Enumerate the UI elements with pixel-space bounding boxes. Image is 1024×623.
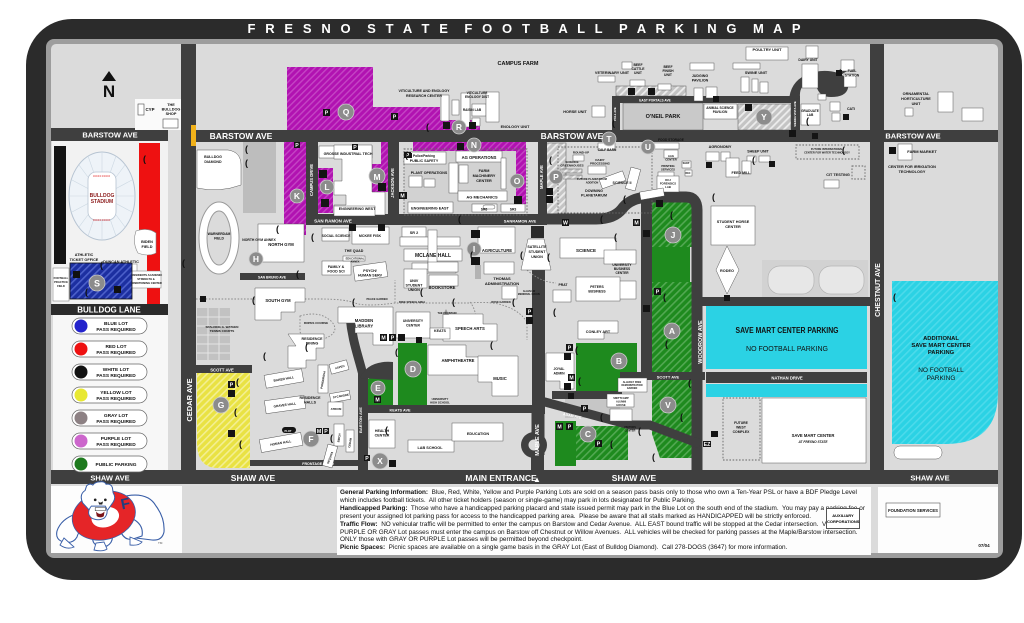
svg-text:DINING: DINING — [306, 342, 319, 346]
svg-text:SCIENCE: SCIENCE — [576, 248, 596, 253]
svg-text:STUDENT HORSE: STUDENT HORSE — [717, 220, 750, 224]
svg-text:BULLDOG: BULLDOG — [162, 108, 181, 112]
svg-text:(: ( — [234, 407, 237, 417]
svg-text:SCOTT AVE: SCOTT AVE — [210, 368, 234, 373]
svg-text:(: ( — [575, 345, 578, 355]
svg-text:O: O — [514, 176, 521, 186]
svg-text:TM: TM — [158, 541, 163, 545]
svg-text:DAIRY UNIT: DAIRY UNIT — [798, 58, 818, 62]
svg-text:(: ( — [614, 232, 617, 242]
svg-text:KEATS AVE: KEATS AVE — [389, 409, 410, 413]
svg-text:FAMILY &: FAMILY & — [328, 265, 345, 269]
svg-text:C: C — [585, 429, 591, 439]
svg-text:BULLDOG LANE: BULLDOG LANE — [77, 306, 141, 315]
svg-text:HOUSE: HOUSE — [616, 403, 625, 407]
svg-text:SHAW AVE: SHAW AVE — [612, 473, 657, 483]
svg-text:LAB SCHOOL: LAB SCHOOL — [417, 446, 443, 450]
svg-text:(: ( — [806, 116, 809, 126]
svg-text:oooooooo: oooooooo — [93, 218, 110, 222]
svg-text:(: ( — [680, 412, 683, 422]
svg-text:SCOTT AVE: SCOTT AVE — [657, 375, 680, 380]
svg-text:PASS REQUIRED: PASS REQUIRED — [96, 373, 136, 379]
svg-text:(: ( — [623, 194, 626, 204]
svg-text:SWINE UNIT: SWINE UNIT — [745, 71, 768, 75]
svg-text:P: P — [568, 425, 572, 431]
svg-text:CIT TESTING: CIT TESTING — [826, 173, 850, 177]
svg-text:MCLANE HALL: MCLANE HALL — [415, 253, 451, 259]
svg-text:BUSINESS: BUSINESS — [588, 290, 606, 294]
svg-text:UNIV: UNIV — [410, 279, 419, 283]
svg-text:(: ( — [426, 122, 429, 132]
svg-text:(: ( — [665, 339, 668, 349]
svg-text:(: ( — [245, 144, 248, 154]
svg-text:(: ( — [470, 250, 473, 260]
svg-text:UNIVERSITY: UNIVERSITY — [403, 319, 424, 323]
svg-text:SHAW AVE: SHAW AVE — [910, 474, 949, 483]
svg-text:P: P — [324, 429, 328, 435]
svg-text:PUBLIC SAFETY: PUBLIC SAFETY — [410, 159, 439, 163]
svg-text:E: E — [375, 383, 381, 393]
svg-text:(: ( — [688, 378, 691, 388]
svg-text:STADIUM: STADIUM — [91, 199, 113, 205]
svg-text:P: P — [230, 383, 234, 389]
svg-text:UNIT: UNIT — [912, 102, 922, 106]
svg-text:FOOD SCI: FOOD SCI — [327, 270, 344, 274]
svg-text:CENTER: CENTER — [725, 225, 741, 229]
svg-text:PARKING: PARKING — [927, 375, 956, 382]
svg-text:WEST: WEST — [736, 426, 747, 430]
svg-text:T: T — [606, 134, 612, 144]
svg-text:(: ( — [245, 158, 248, 168]
svg-text:JOYAL: JOYAL — [554, 367, 565, 371]
svg-text:SAVE MART CENTER PARKING: SAVE MART CENTER PARKING — [736, 326, 839, 335]
svg-text:LIBRARY: LIBRARY — [355, 324, 374, 329]
svg-text:CAMPUS FARM: CAMPUS FARM — [498, 61, 539, 67]
svg-text:UNIT: UNIT — [634, 71, 643, 75]
svg-text:MEMORIAL GROVE: MEMORIAL GROVE — [518, 293, 541, 296]
svg-text:ADMINISTRATION: ADMINISTRATION — [485, 281, 519, 286]
svg-text:I: I — [473, 244, 475, 254]
svg-text:ADDITION: ADDITION — [586, 181, 599, 185]
svg-text:FUEL: FUEL — [848, 69, 857, 73]
svg-text:FUTURE PLANETARIUM: FUTURE PLANETARIUM — [577, 177, 607, 181]
svg-text:M: M — [634, 221, 638, 227]
svg-text:SATELLITE: SATELLITE — [527, 245, 547, 249]
svg-text:BARSTOW AVE: BARSTOW AVE — [541, 131, 604, 141]
svg-text:(: ( — [547, 252, 550, 262]
svg-text:VETERINARY UNIT: VETERINARY UNIT — [595, 71, 630, 75]
svg-text:ROSE GARDEN: ROSE GARDEN — [491, 300, 510, 304]
svg-text:CALF BARN: CALF BARN — [598, 148, 617, 152]
svg-text:(: ( — [330, 433, 333, 443]
svg-text:AG MECHANICS: AG MECHANICS — [466, 195, 498, 200]
svg-text:GROSSE INDUSTRIAL TECH: GROSSE INDUSTRIAL TECH — [324, 152, 373, 156]
svg-text:RESIDENCE: RESIDENCE — [300, 396, 322, 400]
svg-text:PLANETARIUM: PLANETARIUM — [581, 194, 607, 198]
svg-text:TICKET OFFICE: TICKET OFFICE — [70, 258, 99, 262]
svg-text:(: ( — [600, 412, 603, 422]
svg-text:LAB: LAB — [807, 113, 814, 117]
svg-text:(: ( — [752, 155, 755, 165]
svg-text:ENOLOGY DIST: ENOLOGY DIST — [465, 95, 489, 99]
svg-text:CENTER: CENTER — [625, 429, 636, 433]
svg-text:RED LOT: RED LOT — [105, 344, 126, 350]
svg-text:SANRAMON AVE: SANRAMON AVE — [504, 219, 537, 224]
svg-text:PURPLE LOT: PURPLE LOT — [101, 436, 131, 442]
svg-text:(: ( — [712, 192, 715, 202]
svg-text:BIDEN: BIDEN — [141, 240, 153, 244]
svg-text:ENOLOGY UNIT: ENOLOGY UNIT — [501, 125, 531, 129]
svg-text:MAPLE AVE: MAPLE AVE — [535, 424, 541, 456]
svg-text:AMPHITHEATRE: AMPHITHEATRE — [442, 358, 475, 363]
svg-text:MCKEE FISK: MCKEE FISK — [359, 234, 382, 238]
svg-text:PASS REQUIRED: PASS REQUIRED — [96, 442, 136, 448]
svg-text:UNION: UNION — [531, 255, 543, 259]
svg-text:PASS REQUIRED: PASS REQUIRED — [96, 419, 136, 425]
svg-text:PARKING: PARKING — [928, 350, 955, 356]
svg-text:SR 2: SR 2 — [410, 231, 418, 235]
svg-text:STUDENT: STUDENT — [406, 284, 424, 288]
svg-text:(: ( — [182, 258, 185, 268]
svg-text:STATION: STATION — [845, 74, 860, 78]
svg-text:SHOP: SHOP — [166, 112, 177, 116]
svg-text:THE FOUNTAIN: THE FOUNTAIN — [437, 311, 456, 315]
svg-text:(: ( — [239, 439, 242, 449]
svg-text:PULL AVE: PULL AVE — [613, 107, 617, 121]
svg-text:ALUMNI: ALUMNI — [616, 400, 626, 404]
svg-text:(: ( — [670, 210, 673, 220]
svg-text:P: P — [325, 111, 329, 117]
svg-text:FARM MARKET: FARM MARKET — [907, 149, 937, 154]
svg-text:PEACE GARDEN: PEACE GARDEN — [367, 297, 388, 301]
svg-text:ATHLETIC: ATHLETIC — [75, 253, 94, 257]
svg-text:FUTURE INTERNATIONAL: FUTURE INTERNATIONAL — [811, 147, 844, 151]
svg-text:(: ( — [490, 340, 493, 350]
svg-text:(: ( — [638, 426, 641, 436]
svg-text:HORSE UNIT: HORSE UNIT — [563, 110, 587, 114]
svg-text:UNIT: UNIT — [664, 73, 673, 77]
svg-text:PSYCH/: PSYCH/ — [363, 269, 376, 273]
svg-text:DIAMOND: DIAMOND — [204, 160, 222, 164]
svg-text:PASS REQUIRED: PASS REQUIRED — [96, 327, 136, 333]
svg-text:(: ( — [520, 250, 523, 260]
svg-text:WHITE LOT: WHITE LOT — [103, 367, 129, 373]
svg-text:(: ( — [420, 287, 423, 297]
svg-text:PRESIDENTS ACADEMIC: PRESIDENTS ACADEMIC — [130, 273, 162, 277]
svg-text:(: ( — [549, 155, 552, 165]
svg-text:(: ( — [452, 297, 455, 307]
svg-text:G: G — [218, 400, 225, 410]
svg-text:FIELD: FIELD — [142, 245, 153, 249]
svg-text:P: P — [528, 310, 532, 316]
svg-text:H: H — [253, 254, 259, 264]
svg-text:NATHAN DRIVE: NATHAN DRIVE — [771, 376, 803, 381]
svg-text:MAPLE AVE: MAPLE AVE — [539, 165, 544, 189]
svg-text:BARSTOW AVE: BARSTOW AVE — [210, 131, 273, 141]
svg-text:P: P — [553, 172, 559, 182]
svg-text:GREENHOUSES: GREENHOUSES — [560, 164, 583, 168]
svg-text:MUSIC: MUSIC — [493, 376, 507, 381]
svg-text:ANNEX: ANNEX — [350, 260, 359, 264]
svg-text:SOCIAL SCIENCE: SOCIAL SCIENCE — [322, 234, 352, 238]
svg-text:VITICULTURE AND ENOLOGY: VITICULTURE AND ENOLOGY — [398, 89, 450, 93]
svg-text:RAISIN LAB: RAISIN LAB — [463, 108, 482, 112]
svg-text:CONDITIONING CENTER: CONDITIONING CENTER — [130, 281, 162, 285]
svg-text:GARDEN: GARDEN — [627, 387, 638, 390]
svg-text:CENTER: CENTER — [406, 324, 420, 328]
svg-text:AG OPERATIONS: AG OPERATIONS — [462, 155, 497, 160]
svg-text:U: U — [645, 142, 651, 152]
svg-text:VISITORS: VISITORS — [624, 425, 636, 429]
svg-text:HIGH SCHOOL: HIGH SCHOOL — [430, 401, 450, 405]
svg-text:M: M — [400, 194, 404, 200]
svg-text:SIERRA VISTA AVE: SIERRA VISTA AVE — [793, 101, 797, 127]
svg-text:J: J — [671, 230, 676, 240]
svg-text:SMITTCAMP: SMITTCAMP — [613, 396, 629, 400]
svg-text:BARSTOW AVE: BARSTOW AVE — [82, 131, 137, 140]
svg-text:BARTON AVE: BARTON AVE — [358, 407, 363, 433]
svg-text:WOODROW AVE: WOODROW AVE — [698, 320, 704, 364]
svg-text:ADDITIONAL: ADDITIONAL — [923, 336, 959, 342]
svg-text:F: F — [308, 434, 313, 444]
svg-text:ENGINEERING EAST: ENGINEERING EAST — [411, 207, 449, 211]
svg-text:FEED MILL: FEED MILL — [732, 171, 752, 175]
svg-text:(: ( — [352, 297, 355, 307]
svg-text:P: P — [597, 442, 601, 448]
svg-text:07/04: 07/04 — [978, 543, 990, 548]
svg-text:PROCESSING: PROCESSING — [590, 162, 611, 166]
svg-text:X: X — [377, 456, 383, 466]
svg-text:SOUTH GYM: SOUTH GYM — [265, 298, 291, 303]
svg-text:M: M — [317, 429, 321, 435]
svg-text:STUDENT: STUDENT — [529, 250, 547, 254]
svg-text:STRENGTH &: STRENGTH & — [137, 277, 155, 281]
svg-text:N: N — [471, 140, 477, 150]
svg-text:MADDEN: MADDEN — [355, 318, 373, 323]
svg-text:SPEECH ARTS: SPEECH ARTS — [455, 326, 485, 331]
svg-text:(: ( — [610, 439, 613, 449]
svg-text:L: L — [324, 182, 329, 192]
svg-text:P: P — [656, 290, 660, 296]
svg-text:TENNIS COURTS: TENNIS COURTS — [210, 329, 235, 333]
svg-text:P: P — [568, 346, 572, 352]
svg-text:PRACTICE: PRACTICE — [54, 280, 68, 284]
svg-text:B: B — [616, 356, 622, 366]
svg-text:FARM: FARM — [479, 169, 490, 173]
svg-text:(: ( — [236, 377, 239, 387]
svg-text:CHESTNUT AVE: CHESTNUT AVE — [875, 263, 882, 317]
svg-text:SHOP: SHOP — [683, 162, 690, 165]
svg-text:(: ( — [578, 376, 581, 386]
svg-text:(: ( — [143, 154, 146, 164]
svg-text:SAVE MART CENTER: SAVE MART CENTER — [792, 433, 835, 438]
svg-text:V: V — [665, 400, 671, 410]
svg-text:BLUE LOT: BLUE LOT — [104, 321, 128, 327]
svg-text:(: ( — [85, 287, 88, 297]
svg-text:CENTER: CENTER — [615, 271, 629, 275]
svg-text:FREE SPEECH AREA: FREE SPEECH AREA — [399, 300, 425, 304]
svg-text:BOOKSTORE: BOOKSTORE — [429, 285, 456, 290]
svg-text:COMPLEX: COMPLEX — [733, 430, 751, 434]
svg-text:ROUND-UP: ROUND-UP — [573, 151, 589, 155]
svg-text:NO FOOTBALL PARKING: NO FOOTBALL PARKING — [746, 346, 828, 353]
svg-text:P: P — [583, 407, 587, 413]
svg-text:FUTURE: FUTURE — [734, 421, 748, 425]
svg-text:▲: ▲ — [533, 475, 541, 484]
svg-text:MACHINERY: MACHINERY — [473, 174, 496, 178]
svg-text:MAIN ENTRANCE: MAIN ENTRANCE — [465, 473, 537, 483]
svg-text:BULLDOG: BULLDOG — [204, 155, 222, 159]
svg-text:Police/Parking: Police/Parking — [413, 154, 435, 158]
svg-text:UNION: UNION — [408, 288, 420, 292]
svg-text:FOOD STORAGE: FOOD STORAGE — [658, 138, 684, 142]
svg-text:D: D — [410, 364, 416, 374]
svg-text:(: ( — [652, 452, 655, 462]
svg-text:FIELD: FIELD — [57, 284, 65, 288]
svg-text:FOUNDATION SERVICES: FOUNDATION SERVICES — [888, 508, 938, 513]
svg-text:THE QUAD: THE QUAD — [345, 249, 364, 253]
svg-text:BARSTOW AVE: BARSTOW AVE — [885, 132, 940, 141]
svg-text:POULTRY UNIT: POULTRY UNIT — [752, 47, 782, 52]
svg-text:K: K — [294, 191, 301, 201]
svg-text:ADMIN: ADMIN — [553, 372, 565, 376]
svg-text:SR6: SR6 — [481, 208, 488, 212]
svg-text:NO FOOTBALL: NO FOOTBALL — [918, 367, 964, 374]
svg-text:(: ( — [600, 214, 603, 224]
svg-text:SHEEP UNIT: SHEEP UNIT — [747, 150, 769, 154]
svg-text:ATRIUM: ATRIUM — [331, 407, 342, 411]
svg-text:PAVILION: PAVILION — [713, 110, 728, 114]
svg-text:M: M — [381, 336, 385, 342]
svg-text:R: R — [456, 122, 462, 132]
svg-text:CENTER: CENTER — [476, 179, 492, 183]
svg-text:KEATS: KEATS — [434, 329, 447, 333]
svg-text:oooooooo: oooooooo — [93, 174, 110, 178]
svg-text:THE: THE — [167, 103, 175, 107]
svg-text:PLANT OPERATIONS: PLANT OPERATIONS — [411, 171, 448, 175]
svg-text:CATI: CATI — [847, 107, 855, 111]
svg-text:CONLEY ART: CONLEY ART — [586, 330, 611, 334]
svg-text:(: ( — [553, 307, 556, 317]
svg-text:(: ( — [512, 297, 515, 307]
svg-text:(: ( — [663, 292, 666, 302]
svg-text:Q: Q — [343, 107, 350, 117]
svg-text:M: M — [569, 376, 573, 382]
svg-text:YELLOW LOT: YELLOW LOT — [100, 390, 132, 396]
svg-text:ROPES COURSE: ROPES COURSE — [304, 321, 328, 325]
svg-text:PETERS: PETERS — [590, 285, 604, 289]
svg-text:(: ( — [252, 295, 255, 305]
svg-text:PLOT: PLOT — [285, 429, 292, 433]
svg-text:NORTH GYM: NORTH GYM — [268, 242, 294, 247]
svg-text:O'NEIL PARK: O'NEIL PARK — [646, 114, 681, 120]
svg-text:AGRICULTURE: AGRICULTURE — [482, 248, 512, 253]
svg-text:A: A — [669, 326, 675, 336]
svg-text:M: M — [557, 425, 561, 431]
svg-text:N: N — [103, 82, 115, 101]
svg-text:P: P — [353, 145, 357, 151]
svg-text:FOOTBALL: FOOTBALL — [54, 276, 69, 280]
svg-text:SAVE MART CENTER: SAVE MART CENTER — [911, 343, 971, 349]
svg-text:S: S — [94, 279, 100, 289]
svg-text:SAN RAMON AVE: SAN RAMON AVE — [314, 219, 352, 224]
svg-text:GRAY LOT: GRAY LOT — [104, 413, 128, 419]
svg-text:JACKSON AVE: JACKSON AVE — [390, 168, 395, 198]
svg-text:W: W — [563, 221, 568, 227]
svg-text:HORTICULTURE: HORTICULTURE — [901, 97, 931, 101]
svg-text:SHAW AVE: SHAW AVE — [90, 474, 129, 483]
svg-text:M: M — [375, 398, 379, 404]
svg-text:EZ: EZ — [704, 442, 711, 448]
svg-text:SAN BRUNO AVE: SAN BRUNO AVE — [258, 276, 287, 280]
svg-text:CEDAR AVE: CEDAR AVE — [185, 378, 194, 421]
svg-text:EAST PORTALS AVE: EAST PORTALS AVE — [639, 99, 670, 103]
svg-text:JUDGING: JUDGING — [692, 74, 709, 78]
svg-text:RESEARCH CENTER: RESEARCH CENTER — [406, 94, 442, 98]
svg-text:CENTER FOR WATER TECHNOLOGY: CENTER FOR WATER TECHNOLOGY — [804, 151, 850, 155]
svg-text:PUBLIC PARKING: PUBLIC PARKING — [96, 462, 137, 468]
svg-text:TECHNOLOGY: TECHNOLOGY — [899, 170, 926, 174]
svg-text:CENTER: CENTER — [665, 158, 677, 162]
svg-text:(: ( — [296, 269, 299, 279]
svg-text:ORNAMENTAL: ORNAMENTAL — [903, 92, 930, 96]
svg-text:P: P — [391, 336, 395, 342]
svg-text:SR3: SR3 — [510, 208, 517, 212]
svg-text:PASS REQUIRED: PASS REQUIRED — [96, 396, 136, 402]
svg-text:CAMPUS DRIVE: CAMPUS DRIVE — [309, 164, 314, 196]
svg-text:PAVILION: PAVILION — [692, 79, 709, 83]
svg-text:(: ( — [458, 214, 461, 224]
svg-text:(: ( — [311, 232, 314, 242]
svg-text:LAB: LAB — [665, 185, 671, 189]
svg-text:EDUCATION: EDUCATION — [467, 432, 490, 436]
svg-text:(: ( — [893, 292, 896, 302]
svg-text:RESIDENCE: RESIDENCE — [302, 337, 324, 341]
svg-text:FIELD: FIELD — [214, 237, 224, 241]
svg-text:ENGINEERING WEST: ENGINEERING WEST — [339, 207, 376, 211]
svg-text:P: P — [295, 143, 299, 149]
svg-text:PASS REQUIRED: PASS REQUIRED — [96, 350, 136, 356]
svg-text:HUMAN SERV: HUMAN SERV — [358, 274, 383, 278]
svg-text:PRAT: PRAT — [559, 283, 569, 287]
svg-text:DOWNING: DOWNING — [585, 189, 603, 193]
svg-text:P: P — [393, 115, 397, 121]
svg-text:WARNERDAM: WARNERDAM — [208, 232, 231, 236]
svg-text:Y: Y — [761, 112, 767, 122]
svg-text:RODEO: RODEO — [720, 269, 734, 273]
svg-text:SHAW AVE: SHAW AVE — [231, 473, 276, 483]
svg-text:HEALTH: HEALTH — [375, 429, 390, 433]
svg-text:(: ( — [405, 150, 408, 160]
svg-text:(: ( — [100, 260, 103, 270]
svg-text:(: ( — [395, 347, 398, 357]
svg-text:HALLS: HALLS — [304, 401, 317, 405]
svg-text:AGRONOMY: AGRONOMY — [709, 145, 732, 149]
svg-text:AT FRESNO STATE: AT FRESNO STATE — [797, 440, 828, 444]
svg-text:CENTER: CENTER — [375, 434, 390, 438]
svg-text:SERVICES: SERVICES — [661, 168, 675, 172]
svg-text:REC: REC — [685, 172, 690, 175]
svg-text:(: ( — [263, 351, 266, 361]
svg-text:CYP: CYP — [145, 107, 154, 112]
svg-text:SCIENCE II: SCIENCE II — [613, 181, 632, 185]
svg-text:(: ( — [276, 224, 279, 234]
svg-text:P: P — [365, 456, 369, 462]
svg-text:M: M — [373, 172, 380, 182]
svg-text:CENTER FOR IRRIGATION: CENTER FOR IRRIGATION — [888, 165, 936, 169]
